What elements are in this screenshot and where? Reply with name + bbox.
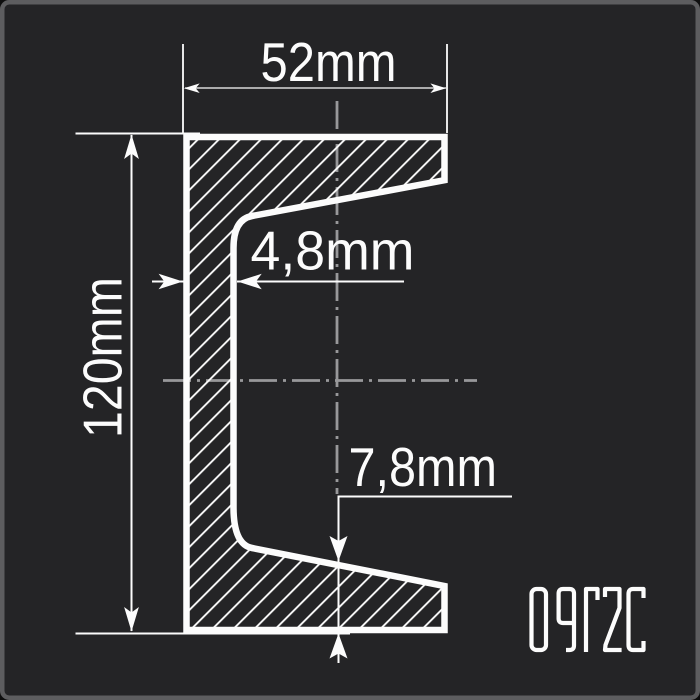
svg-text:7,8mm: 7,8mm: [349, 436, 498, 498]
svg-text:4,8mm: 4,8mm: [251, 220, 415, 282]
svg-text:120mm: 120mm: [72, 277, 134, 438]
svg-text:52mm: 52mm: [261, 31, 397, 93]
